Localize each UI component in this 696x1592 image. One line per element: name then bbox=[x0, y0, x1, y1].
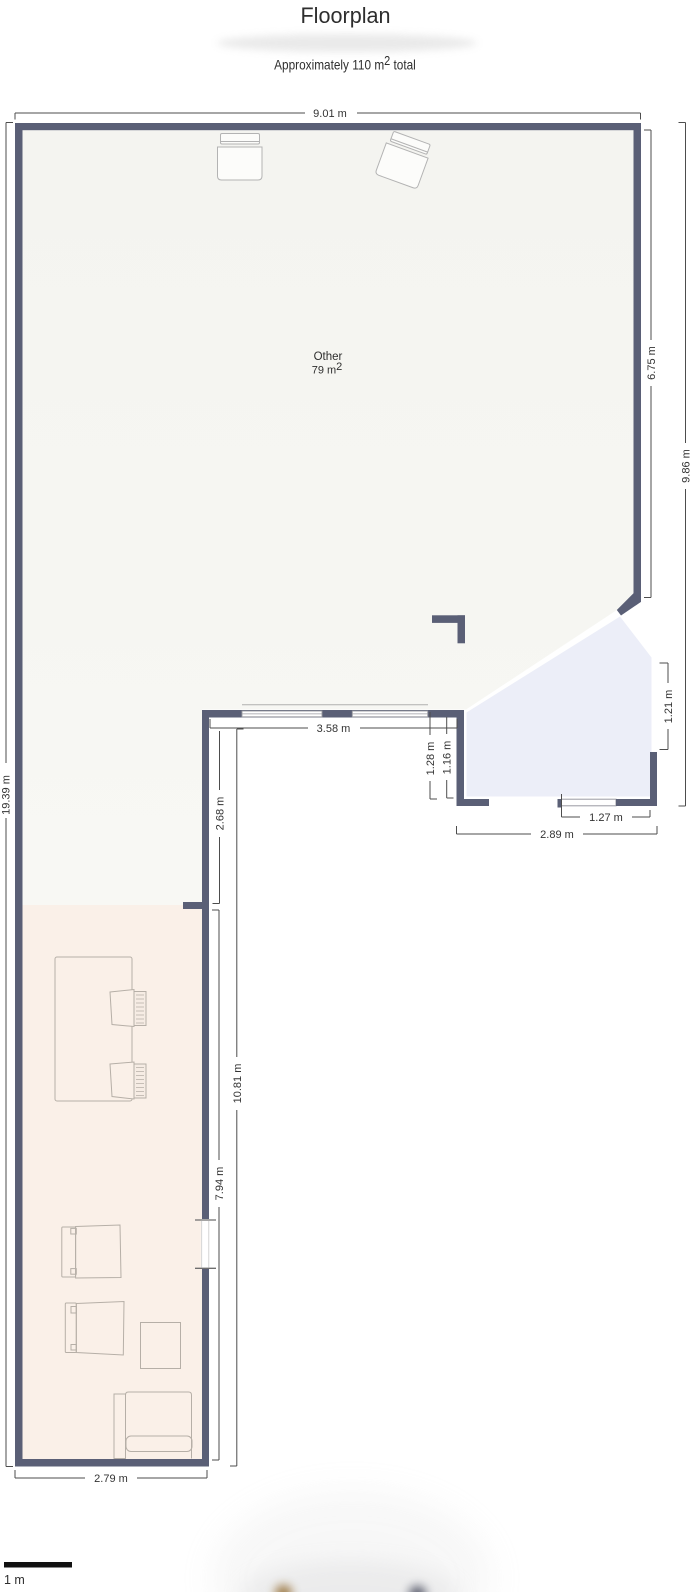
svg-text:Approximately 110 m2 total: Approximately 110 m2 total bbox=[274, 54, 416, 72]
svg-text:Floorplan: Floorplan bbox=[300, 3, 390, 29]
svg-text:1.28 m: 1.28 m bbox=[425, 742, 437, 776]
svg-text:1.21 m: 1.21 m bbox=[663, 690, 675, 724]
svg-text:2.68 m: 2.68 m bbox=[215, 797, 227, 831]
svg-text:10.81 m: 10.81 m bbox=[232, 1064, 244, 1104]
svg-text:19.39 m: 19.39 m bbox=[1, 775, 13, 815]
svg-text:1 m: 1 m bbox=[4, 1573, 25, 1587]
svg-text:9.86 m: 9.86 m bbox=[681, 449, 693, 483]
svg-text:1.16 m: 1.16 m bbox=[442, 741, 454, 775]
svg-text:9.01 m: 9.01 m bbox=[313, 108, 347, 120]
svg-text:2.89 m: 2.89 m bbox=[540, 829, 574, 841]
svg-text:1.27 m: 1.27 m bbox=[589, 812, 623, 824]
svg-text:3.58 m: 3.58 m bbox=[317, 723, 351, 735]
svg-text:2.79 m: 2.79 m bbox=[94, 1473, 128, 1485]
svg-text:6.75 m: 6.75 m bbox=[646, 346, 658, 380]
svg-text:7.94 m: 7.94 m bbox=[214, 1167, 226, 1201]
